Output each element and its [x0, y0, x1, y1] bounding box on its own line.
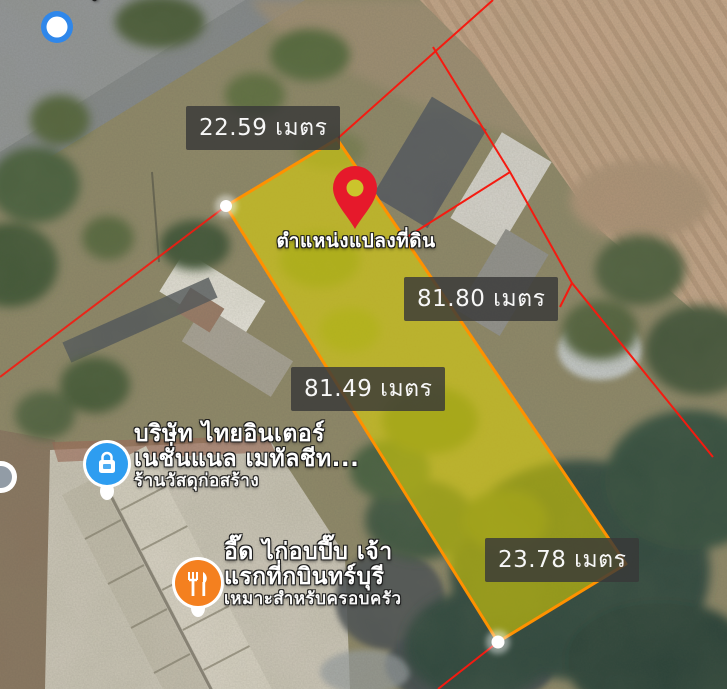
poi-shop-line1[interactable]: บริษัท ไทยอินเตอร์	[134, 422, 359, 447]
poi-restaurant-line2[interactable]: แรกที่กบินทร์บุรี	[224, 565, 402, 590]
vertex-dot-bottom	[486, 630, 510, 654]
measurement-left-side: 81.49 เมตร	[291, 367, 445, 411]
poi-restaurant-line1[interactable]: อี๊ด ไก่อบปี๊บ เจ้า	[224, 540, 402, 565]
poi-shop-label[interactable]: บริษัท ไทยอินเตอร์ เนชั่นแนล เมทัลชีท...…	[134, 422, 359, 490]
vertex-dot-top-left	[215, 195, 237, 217]
pin-caption: ตำแหน่งแปลงที่ดิน	[272, 231, 440, 252]
poi-shop-line3[interactable]: ร้านวัสดุก่อสร้าง	[134, 472, 359, 490]
measurement-bottom-side: 23.78 เมตร	[485, 538, 639, 582]
measurement-right-side: 81.80 เมตร	[404, 277, 558, 321]
measurement-top-side: 22.59 เมตร	[186, 106, 340, 150]
map-canvas[interactable]: ถนน 22.59 เมตร 81.80 เมตร 81.49 เมตร 23.…	[0, 0, 727, 689]
poi-restaurant-label[interactable]: อี๊ด ไก่อบปี๊บ เจ้า แรกที่กบินทร์บุรี เห…	[224, 540, 402, 608]
poi-shop-line2[interactable]: เนชั่นแนล เมทัลชีท...	[134, 447, 359, 472]
poi-restaurant-line3[interactable]: เหมาะสำหรับครอบครัว	[224, 590, 402, 608]
location-dot	[41, 11, 73, 43]
